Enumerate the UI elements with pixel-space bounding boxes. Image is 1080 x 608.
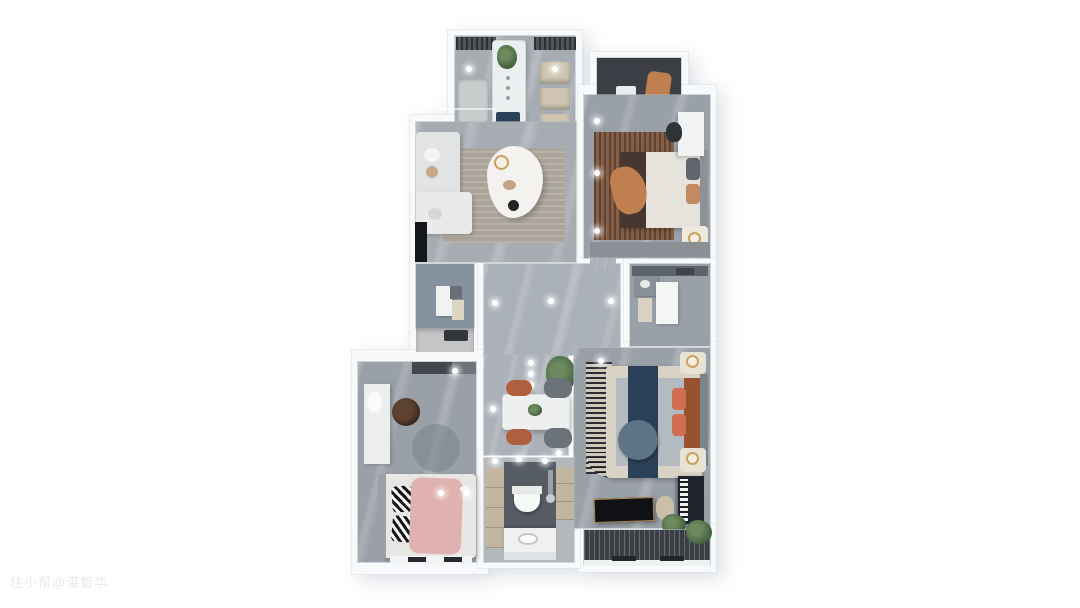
hall-downlight-1: [492, 300, 498, 306]
sofa-pillow-white: [424, 148, 440, 162]
bath-small-mat: [638, 298, 652, 322]
bedroom3-round-rug: [412, 424, 460, 472]
window-frame-1: [612, 556, 636, 561]
bedroom2-coral-pillow-1: [672, 388, 686, 410]
foyer-cabinet-left: [456, 37, 496, 50]
master-pillow-dark: [686, 158, 700, 180]
screenshot-canvas: 住小帮@湛智华: [0, 0, 1080, 608]
foyer-downlight-1: [466, 66, 472, 72]
south-balcony-plant: [686, 520, 712, 544]
glass-door-track: [416, 108, 498, 110]
bedroom2-round-cushion: [618, 420, 658, 460]
master-downlight-3: [594, 228, 600, 234]
south-balcony-sill: [584, 560, 710, 566]
bath-small-basin: [640, 280, 650, 288]
corridor-floor: [484, 264, 620, 355]
coffee-table-tray: [494, 155, 509, 170]
sofa-pillow-tan: [426, 166, 438, 178]
bedroom3-chair: [392, 398, 420, 426]
island-knob-2: [506, 86, 510, 90]
island-plant: [497, 45, 517, 69]
bedroom3-downlight-3: [464, 490, 470, 496]
bedroom3-headboard: [378, 474, 386, 558]
dining-chair-gray-1: [544, 378, 572, 398]
master-downlight-2: [594, 170, 600, 176]
hall-downlight-4: [528, 360, 534, 366]
bedroom3-downlight-1: [452, 368, 458, 374]
sofa-pillow-gray: [428, 208, 442, 220]
shelf-cube-2: [540, 88, 570, 110]
bedroom2-downlight: [598, 358, 604, 364]
island-knob-3: [506, 96, 510, 100]
dining-chair-terracotta-2: [506, 429, 532, 445]
bath-small-top-band: [632, 266, 708, 276]
dining-chair-terracotta-1: [506, 380, 532, 396]
master-bottom-console: [590, 242, 710, 257]
bath-mirror-light-3: [542, 458, 548, 464]
dining-chair-gray-2: [544, 428, 572, 448]
master-headboard: [700, 150, 708, 230]
island-knob-1: [506, 76, 510, 80]
toilet-tank: [512, 486, 542, 494]
foyer-side-cabinet: [458, 78, 488, 122]
hall-downlight-8: [556, 450, 562, 456]
window-frame-2: [660, 556, 684, 561]
bedroom2-coral-pillow-2: [672, 414, 686, 436]
tv-panel: [415, 222, 427, 262]
shower-column: [548, 470, 553, 496]
kitchenette-cabinet-beige: [452, 300, 464, 320]
kitchenette-cooktop: [444, 330, 468, 341]
bath-threshold: [504, 552, 556, 560]
bedroom3-window-frame-1: [408, 557, 426, 562]
shower-head: [546, 494, 555, 503]
coffee-table-decor: [503, 180, 516, 190]
bath-main-cabinet-left: [486, 468, 504, 548]
foyer-cabinet-right: [534, 37, 576, 50]
bedroom3-wardrobe-dark: [412, 362, 452, 374]
master-desk-chair: [666, 122, 682, 142]
bath-main-cabinet-right: [556, 468, 574, 520]
bath-small-screen: [656, 282, 678, 324]
bedroom3-pink-blanket: [409, 477, 464, 555]
bath-small-shelf-items: [676, 268, 694, 275]
bath-sink: [518, 533, 538, 545]
hall-downlight-5: [528, 371, 534, 377]
floor-plan: [0, 0, 1080, 608]
bedroom3-window-frame-2: [444, 557, 462, 562]
hall-downlight-7: [490, 406, 496, 412]
hall-downlight-2: [548, 298, 554, 304]
coffee-table-vase: [508, 200, 519, 211]
master-pillow-orange: [686, 184, 700, 204]
bedroom3-desk-lamp: [368, 392, 381, 412]
bedroom2-desk: [594, 497, 655, 523]
piano-keys: [680, 479, 688, 521]
door-patch-master: [590, 258, 616, 268]
foyer-downlight-2: [552, 66, 558, 72]
bedroom2-clock-bottom: [686, 452, 699, 465]
kitchenette-cabinet-dark: [450, 286, 462, 299]
bath-mirror-light-1: [492, 458, 498, 464]
bath-mirror-light-2: [516, 456, 522, 462]
master-downlight-1: [594, 118, 600, 124]
bedroom3-downlight-2: [438, 490, 444, 496]
bedroom2-clock-top: [686, 355, 699, 368]
watermark-text: 住小帮@湛智华: [10, 572, 108, 591]
dining-centerpiece: [528, 404, 542, 416]
hall-downlight-3: [608, 298, 614, 304]
